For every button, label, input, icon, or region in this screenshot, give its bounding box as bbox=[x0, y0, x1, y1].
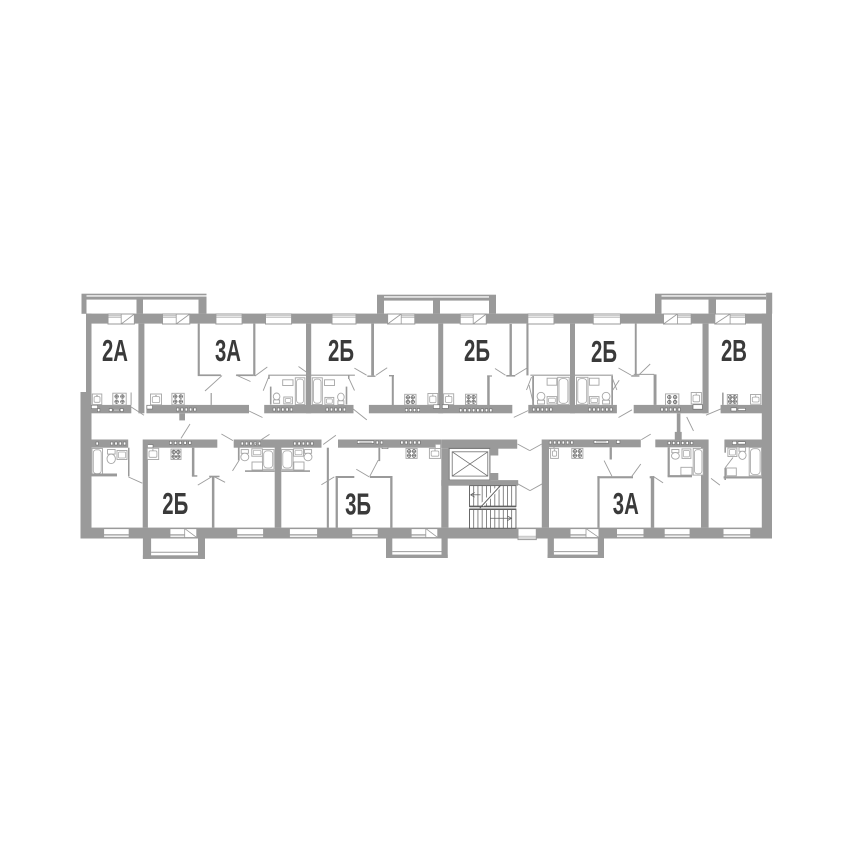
svg-text:2Б: 2Б bbox=[464, 334, 490, 368]
svg-text:3А: 3А bbox=[613, 487, 639, 521]
svg-text:2Б: 2Б bbox=[328, 334, 354, 368]
svg-text:3Б: 3Б bbox=[345, 487, 371, 521]
svg-text:2В: 2В bbox=[721, 334, 747, 368]
svg-text:3А: 3А bbox=[215, 334, 241, 368]
svg-text:2Б: 2Б bbox=[162, 487, 188, 521]
svg-text:2А: 2А bbox=[102, 334, 128, 368]
svg-text:2Б: 2Б bbox=[591, 335, 617, 369]
